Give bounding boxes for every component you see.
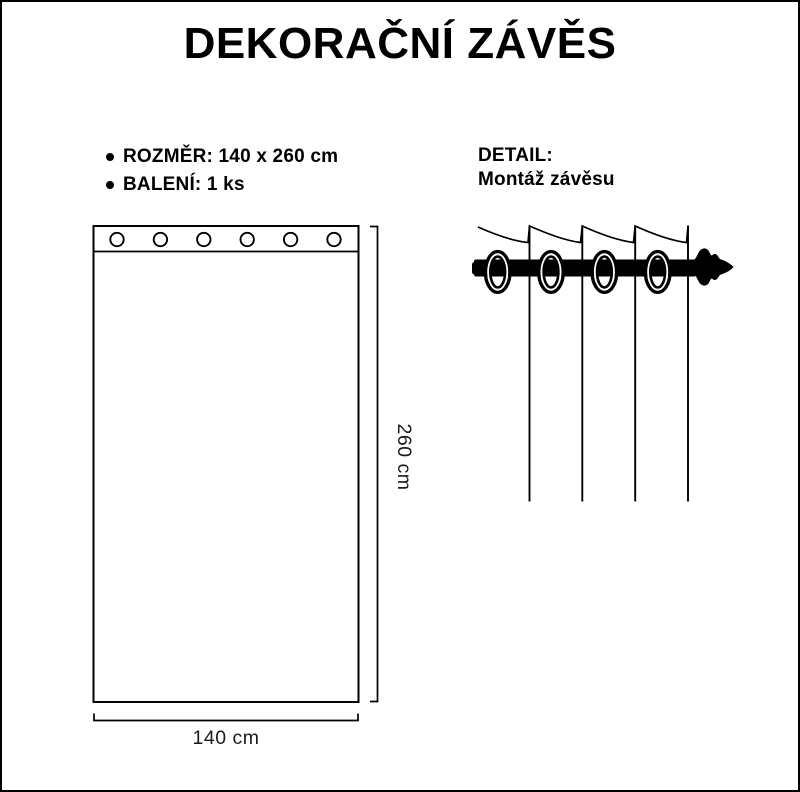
curtain-product-diagram-page: DEKORAČNÍ ZÁVĚS ROZMĚR: 140 x 260 cmBALE… — [0, 0, 800, 792]
grommet-circle — [197, 233, 210, 246]
grommet-circle — [154, 233, 167, 246]
curtain-front-view — [94, 226, 359, 702]
height-bracket — [370, 227, 378, 702]
grommet-circle — [241, 233, 254, 246]
width-dimension-label: 140 cm — [126, 726, 326, 750]
grommet-circle — [284, 233, 297, 246]
width-bracket — [94, 714, 358, 721]
curtain-panel-outline — [94, 226, 359, 702]
grommet-circle — [110, 233, 123, 246]
height-dimension-label: 260 cm — [391, 412, 417, 502]
rod-finial-icon — [694, 248, 734, 285]
diagram-canvas — [2, 2, 800, 792]
mounting-detail-view — [472, 226, 734, 502]
grommet-circle — [327, 233, 340, 246]
